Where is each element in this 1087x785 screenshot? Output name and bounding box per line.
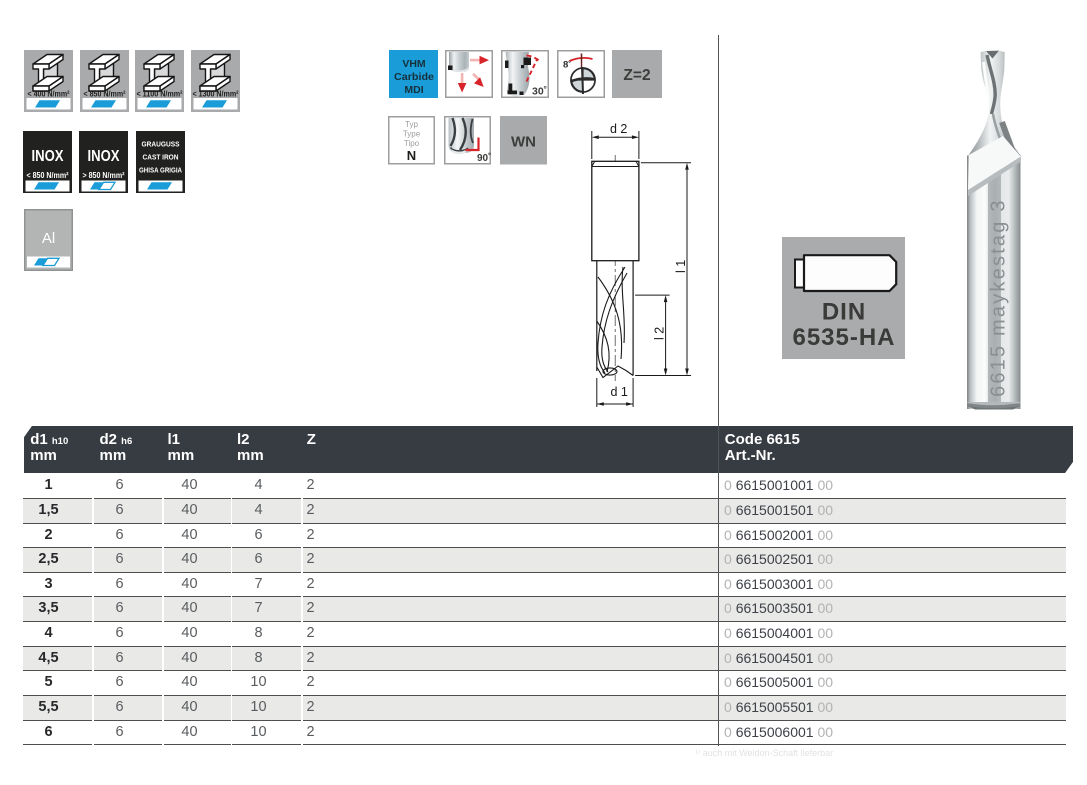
svg-text:Tipo: Tipo [404, 139, 420, 148]
svg-text:< 850 N/mm²: < 850 N/mm² [83, 90, 125, 99]
svg-text:l 1: l 1 [674, 260, 688, 273]
svg-text:d 1: d 1 [611, 385, 628, 399]
svg-text:CAST IRON: CAST IRON [142, 152, 178, 161]
svg-text:GHISA GRIGIA: GHISA GRIGIA [139, 165, 182, 174]
svg-text:WN: WN [511, 134, 536, 151]
svg-text:d 2: d 2 [610, 122, 627, 136]
svg-text:< 400 N/mm²: < 400 N/mm² [28, 90, 70, 99]
svg-text:N: N [407, 148, 416, 163]
svg-text:6535-HA: 6535-HA [792, 324, 895, 351]
svg-text:Type: Type [403, 130, 421, 139]
svg-text:INOX: INOX [32, 148, 64, 165]
svg-text:l 2: l 2 [653, 327, 667, 340]
svg-text:DIN: DIN [821, 298, 865, 325]
svg-text:GRAUGUSS: GRAUGUSS [141, 139, 179, 148]
svg-text:30˚: 30˚ [532, 86, 547, 98]
svg-text:< 850 N/mm²: < 850 N/mm² [27, 171, 69, 180]
svg-text:Typ: Typ [405, 120, 418, 129]
svg-text:MDI: MDI [404, 84, 423, 96]
svg-text:INOX: INOX [88, 148, 120, 165]
svg-text:90˚: 90˚ [477, 152, 491, 164]
svg-text:Al: Al [42, 230, 55, 247]
svg-text:> 850 N/mm²: > 850 N/mm² [83, 171, 125, 180]
svg-text:< 1300 N/mm²: < 1300 N/mm² [192, 90, 238, 99]
svg-text:Carbide: Carbide [394, 71, 434, 83]
svg-text:6615 maykestag 3: 6615 maykestag 3 [988, 198, 1010, 397]
svg-text:< 1100 N/mm²: < 1100 N/mm² [137, 90, 183, 99]
svg-text:VHM: VHM [402, 58, 426, 70]
svg-text:Z=2: Z=2 [623, 67, 650, 84]
